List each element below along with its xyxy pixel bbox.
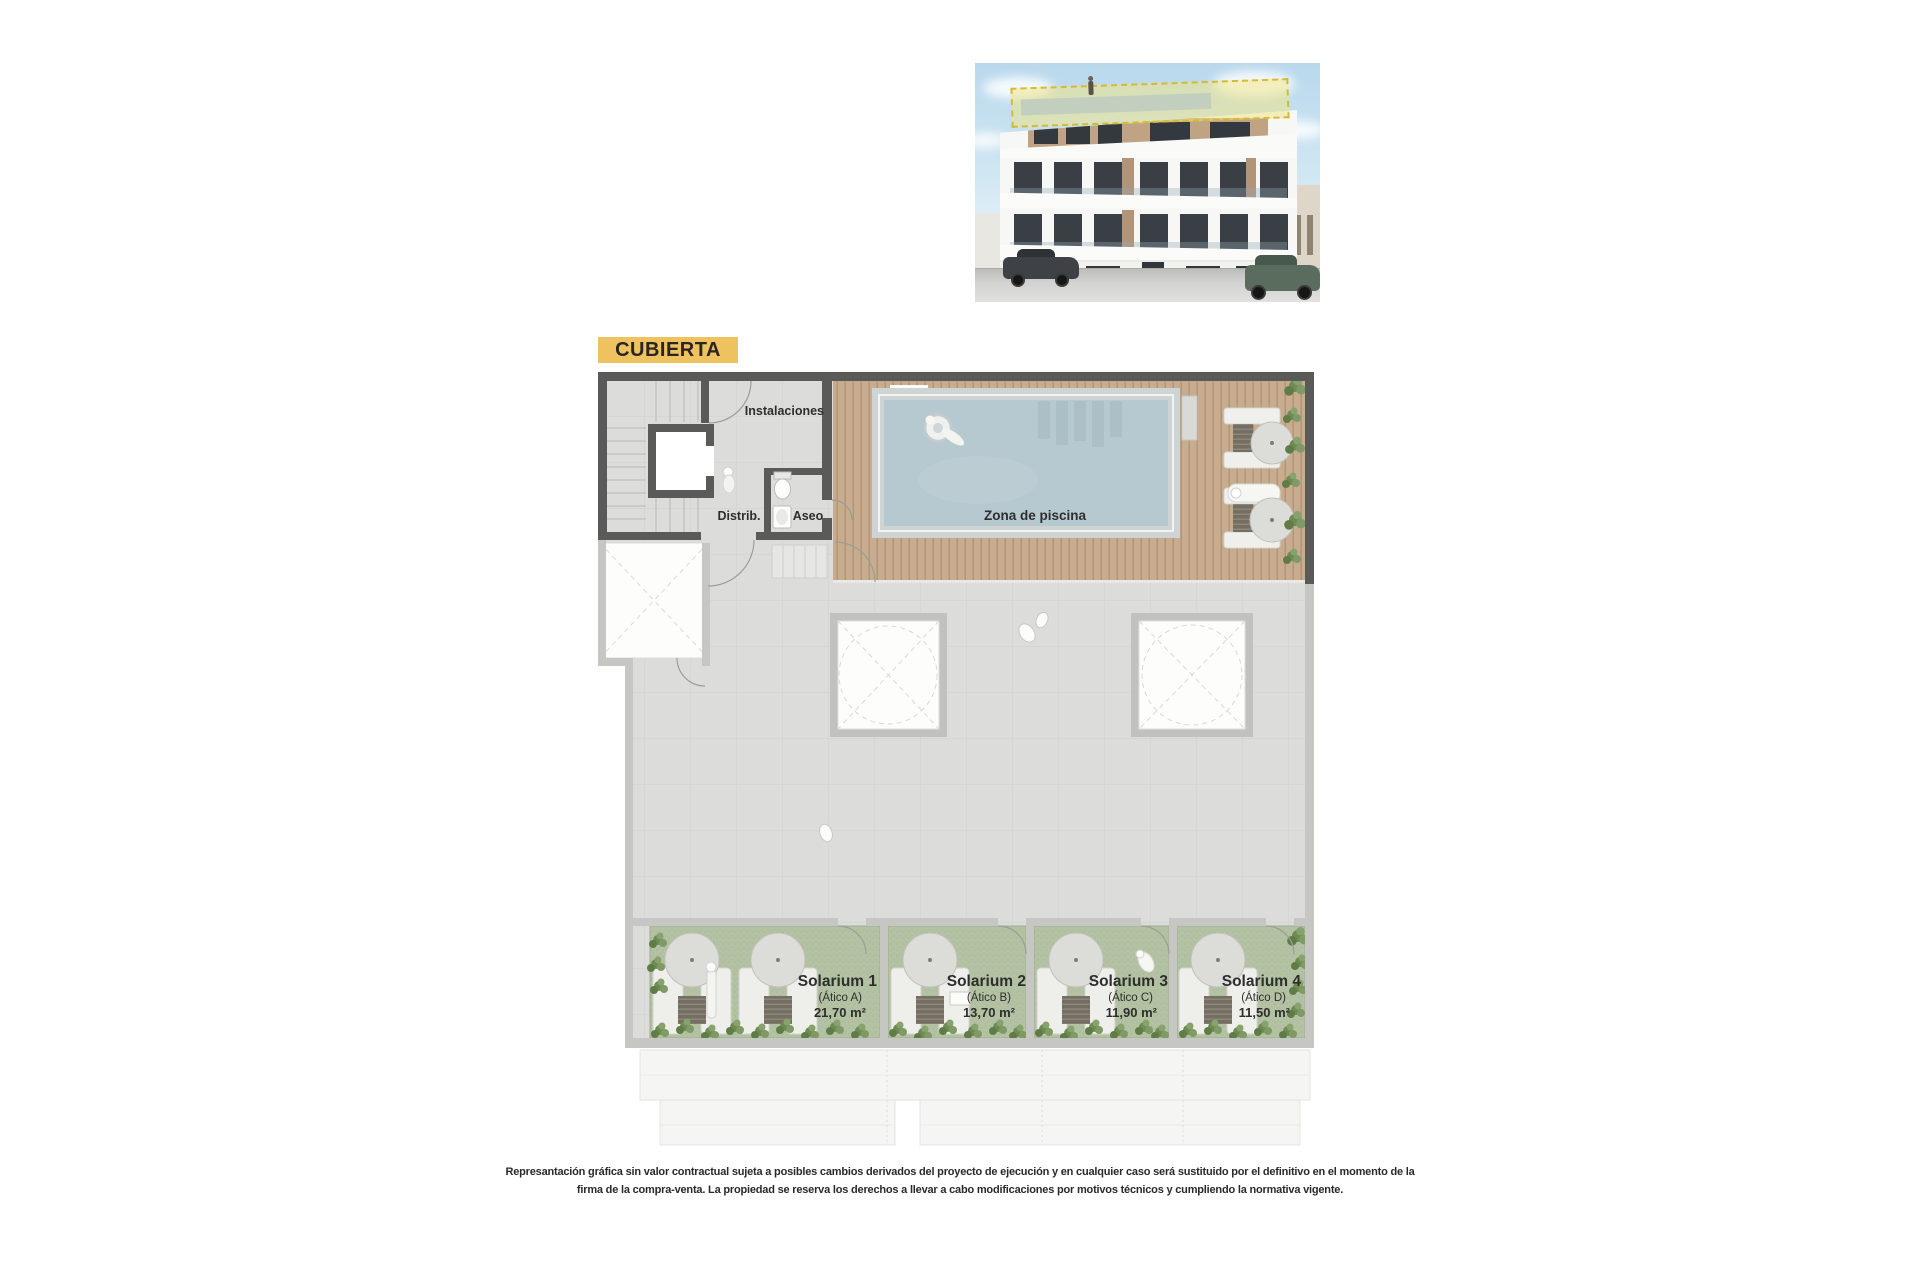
svg-text:Solarium 3: Solarium 3 (1089, 973, 1169, 990)
cubierta-floor-label: CUBIERTA (598, 337, 738, 363)
disclaimer-line-2: firma de la compra-venta. La propiedad s… (0, 1181, 1920, 1199)
attic-window (1098, 122, 1122, 144)
svg-text:(Ático B): (Ático B) (967, 991, 1011, 1004)
car-right (1245, 255, 1320, 302)
svg-text:(Ático D): (Ático D) (1241, 991, 1286, 1004)
svg-text:11,90 m²: 11,90 m² (1106, 1005, 1158, 1020)
person-figure (1088, 81, 1093, 95)
room-distribuidor-label: Distrib. (717, 509, 760, 523)
steps (772, 545, 827, 578)
skylight-right (1131, 613, 1253, 737)
person-figure (723, 467, 735, 493)
sink-icon (773, 506, 791, 528)
neighbor-building-left (975, 213, 1003, 271)
car-left (1003, 249, 1079, 287)
car-wheel (1251, 285, 1266, 300)
page: { "floor_label": { "text": "CUBIERTA" },… (0, 0, 1920, 1280)
car-wheel (1055, 273, 1069, 287)
svg-text:Solarium 1: Solarium 1 (798, 973, 878, 990)
roof-floor-strip (1021, 93, 1211, 116)
disclaimer: Represantación gráfica sin valor contrac… (0, 1163, 1920, 1199)
svg-text:11,50 m²: 11,50 m² (1239, 1005, 1291, 1020)
ghost-lower-floor (640, 1050, 1310, 1145)
stair-void (600, 543, 708, 658)
svg-text:21,70 m²: 21,70 m² (814, 1005, 867, 1020)
roof-plan: Instalaciones Distrib. Aseo Zona de pisc… (598, 370, 1322, 1165)
svg-text:(Ático C): (Ático C) (1108, 991, 1153, 1004)
svg-text:(Ático A): (Ático A) (819, 991, 863, 1004)
skylight-left (830, 613, 947, 737)
toilet-icon (774, 472, 791, 499)
room-aseo-label: Aseo (793, 509, 824, 523)
pool-zone-label: Zona de piscina (984, 508, 1087, 523)
svg-text:Solarium 2: Solarium 2 (947, 973, 1026, 990)
elevator (656, 432, 706, 490)
car-wheel (1297, 285, 1312, 300)
standing-person-icon (706, 962, 716, 1018)
car-wheel (1011, 273, 1025, 287)
svg-text:13,70 m²: 13,70 m² (963, 1005, 1016, 1020)
disclaimer-line-1: Represantación gráfica sin valor contrac… (0, 1163, 1920, 1181)
building-render (975, 63, 1320, 302)
pool-step (1182, 396, 1197, 440)
svg-text:Solarium 4: Solarium 4 (1222, 973, 1302, 990)
room-instalaciones-label: Instalaciones (745, 404, 824, 418)
